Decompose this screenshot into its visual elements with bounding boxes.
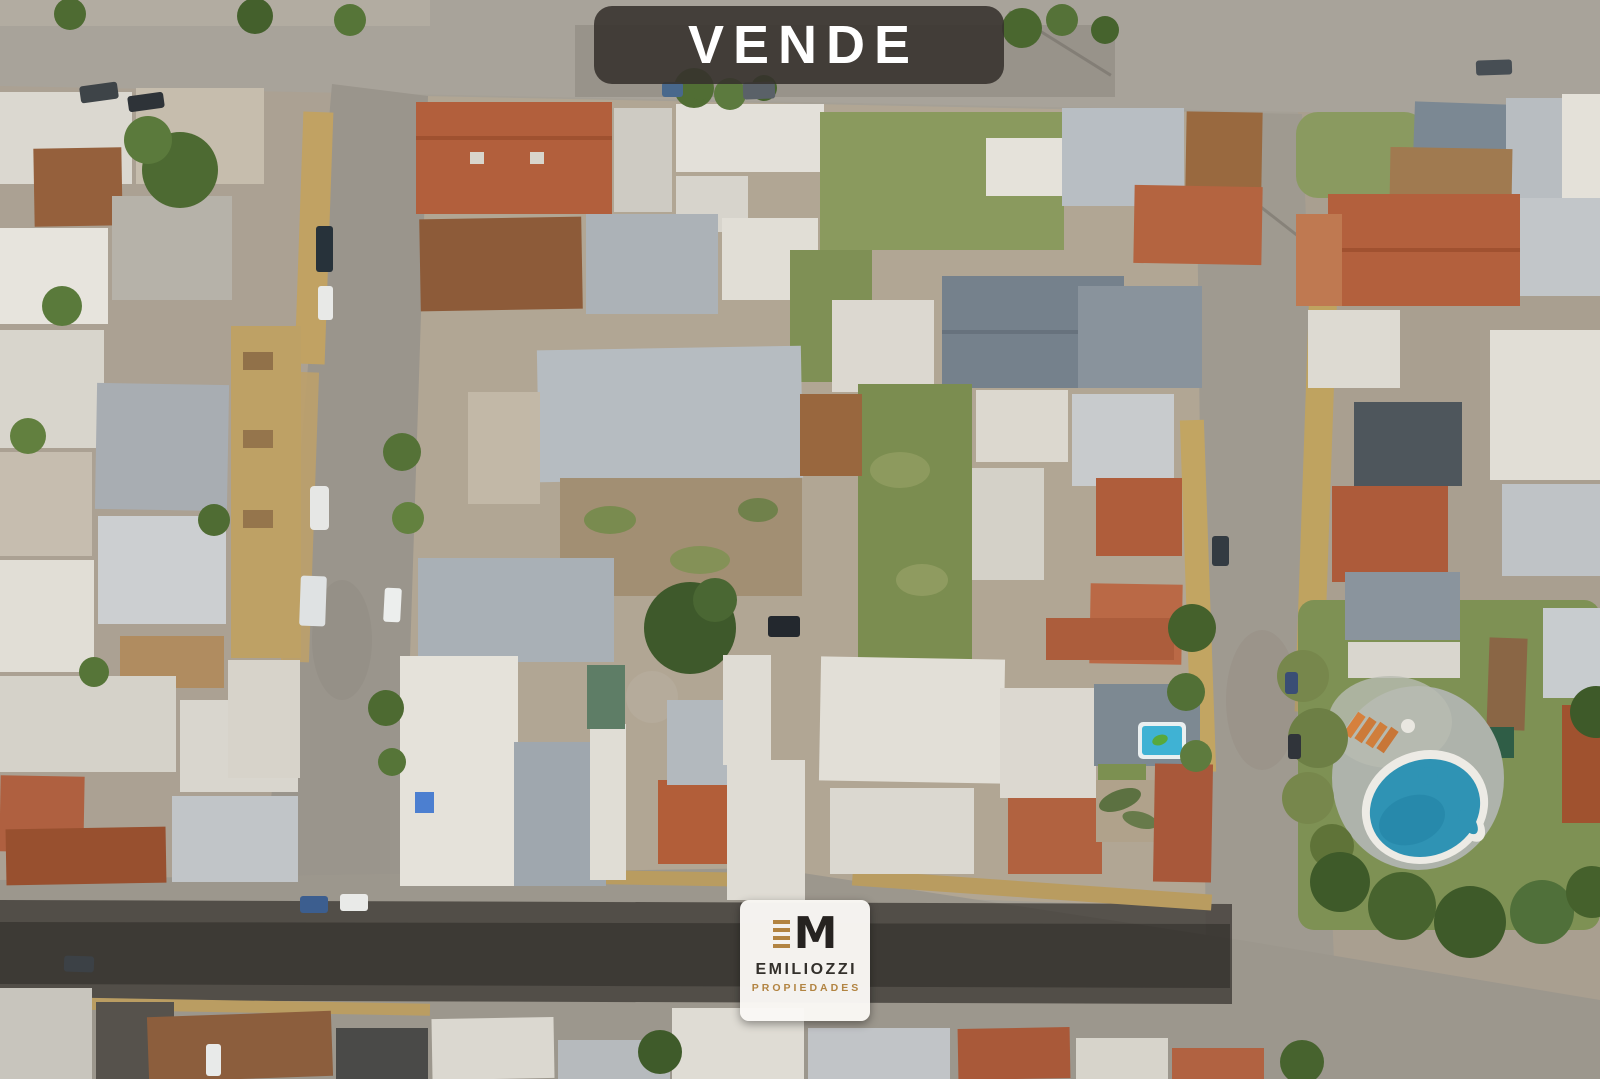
left-tan-building: [231, 326, 301, 658]
rust-long-roof: [419, 217, 583, 312]
tree: [1277, 650, 1329, 702]
tree: [1434, 886, 1506, 958]
gray-roof-e: [1072, 394, 1174, 486]
south-bldg-4: [431, 1017, 554, 1079]
orange-roof-e: [1133, 185, 1262, 265]
lot-dry-patch-2: [896, 564, 948, 596]
lot-dry-patch-1: [870, 452, 930, 488]
car-dark: [1288, 734, 1301, 759]
orange-strip-w: [1296, 214, 1342, 306]
tree: [79, 657, 109, 687]
tree: [1002, 8, 1042, 48]
slate-big-house: [1078, 286, 1202, 388]
white-tall-bldg: [723, 655, 771, 765]
left-roof-6: [0, 452, 92, 556]
bottom-road-shadow-core: [0, 922, 1230, 988]
silver-roof-e: [1543, 608, 1600, 698]
south-bldg-orange-2: [1172, 1048, 1264, 1079]
agency-monogram-icon: M: [773, 914, 838, 954]
tree: [198, 504, 230, 536]
central-roof-2: [676, 104, 824, 172]
monogram-e-bar: [773, 928, 790, 932]
gray-complex-sw: [418, 558, 614, 662]
orange-house-s: [658, 780, 730, 864]
car-blue: [662, 82, 683, 97]
car-white: [206, 1044, 221, 1076]
left-corner-bldg: [228, 660, 300, 778]
orange-house-nw: [416, 102, 612, 214]
tree: [1046, 4, 1078, 36]
tan-bldg-shadow-3: [243, 510, 273, 528]
teal-roof: [587, 665, 625, 729]
south-bldg-1: [0, 988, 92, 1079]
tree: [1510, 880, 1574, 944]
vacant-lot-lawn: [858, 384, 972, 672]
gray-roof-ne2: [1520, 198, 1600, 296]
left-roof-10: [0, 676, 176, 772]
monogram-m-letter: M: [794, 916, 838, 952]
orange-roof-row: [1008, 796, 1102, 874]
tan-bldg-shadow-1: [243, 352, 273, 370]
left-roof-12: [172, 796, 298, 882]
agency-tagline: PROPIEDADES: [749, 982, 861, 994]
tree: [368, 690, 404, 726]
white-roof-rb: [1308, 310, 1400, 388]
tree: [1180, 740, 1212, 772]
tree: [1168, 604, 1216, 652]
white-roof-d: [976, 390, 1068, 462]
tan-bldg-shadow-2: [243, 430, 273, 448]
tree: [334, 4, 366, 36]
agency-name: EMILIOZZI: [753, 961, 857, 979]
central-roof-1: [614, 108, 672, 212]
tree: [383, 433, 421, 471]
orange-house-ridge: [416, 136, 612, 140]
tree: [42, 286, 82, 326]
junk-green-1: [584, 506, 636, 534]
orange-roof-f: [1096, 478, 1182, 556]
left-roof-4: [112, 196, 232, 300]
palm-tree-top: [693, 578, 737, 622]
terracotta-mid: [1046, 618, 1174, 660]
truck-white: [299, 576, 327, 627]
white-bldg-e: [1000, 688, 1096, 798]
monogram-e-bar: [773, 920, 790, 924]
central-roof-4: [586, 214, 718, 314]
white-roof-se: [727, 760, 805, 900]
tree: [1368, 872, 1436, 940]
rust-roof-c: [800, 394, 862, 476]
left-roof-red-2: [6, 827, 167, 886]
terracotta-big-ridge: [1328, 248, 1520, 252]
car-white: [310, 486, 329, 530]
car-dark: [1212, 536, 1229, 566]
white-long-roof: [819, 656, 1005, 783]
car-blue: [1285, 672, 1298, 694]
orange-tile-rb: [1332, 486, 1448, 582]
monogram-e-bar: [773, 936, 790, 940]
white-roof-row: [830, 788, 974, 874]
agency-logo-card: M EMILIOZZI PROPIEDADES: [740, 900, 870, 1021]
terracotta-se: [1153, 764, 1213, 883]
car-blue: [300, 896, 328, 913]
car-dark-green: [316, 226, 333, 272]
tree: [638, 1030, 682, 1074]
car-white: [383, 588, 402, 623]
aerial-photo-frame: VENDE M EMILIOZZI PROPIEDADES: [0, 0, 1600, 1079]
warehouse-roof: [537, 346, 803, 483]
tree: [1310, 852, 1370, 912]
slate-roof-s: [1345, 572, 1460, 640]
gray-edge-e: [1502, 484, 1600, 576]
tree: [1167, 673, 1205, 711]
left-roof-9: [0, 560, 94, 672]
monogram-e-bars: [773, 920, 790, 948]
tree: [392, 502, 424, 534]
patio-table: [1401, 719, 1415, 733]
tree: [378, 748, 406, 776]
tree: [1091, 16, 1119, 44]
pool-bump-water: [1418, 767, 1438, 785]
south-bldg-rust: [147, 1011, 333, 1079]
tree: [10, 418, 46, 454]
blue-tarp: [415, 792, 434, 813]
rust-white-roof: [468, 392, 540, 504]
dark-slate-roof: [1354, 402, 1462, 486]
white-roof-sw: [400, 656, 518, 886]
white-col-roof: [972, 468, 1044, 580]
white-band-s: [1348, 642, 1460, 678]
south-bldg-orange-1: [958, 1027, 1071, 1079]
tree: [124, 116, 172, 164]
rust-roof-ne: [1185, 111, 1262, 188]
wood-tower: [1486, 637, 1527, 730]
chimney-2: [530, 152, 544, 164]
junk-green-3: [738, 498, 778, 522]
junk-green-2: [670, 546, 730, 574]
white-edge-e: [1490, 330, 1600, 480]
car-white: [340, 894, 368, 911]
south-bldg-8: [1076, 1038, 1168, 1079]
chimney-1: [470, 152, 484, 164]
road-patch-3: [1226, 630, 1298, 770]
left-roof-rust: [33, 147, 122, 227]
monogram-e-bar: [773, 944, 790, 948]
car-gray: [1476, 59, 1513, 75]
vende-banner: VENDE: [594, 6, 1004, 84]
white-col-s: [590, 724, 626, 880]
car-white: [318, 286, 333, 320]
left-roof-7: [95, 383, 229, 511]
south-bldg-3: [336, 1028, 428, 1079]
car-dark: [64, 955, 95, 972]
car-gray: [743, 81, 776, 99]
tree: [1282, 772, 1334, 824]
car-dark: [768, 616, 800, 637]
vende-banner-label: VENDE: [679, 18, 919, 72]
patio-top: [986, 138, 1062, 196]
white-roof-c: [832, 300, 934, 392]
south-bldg-7: [808, 1028, 950, 1079]
